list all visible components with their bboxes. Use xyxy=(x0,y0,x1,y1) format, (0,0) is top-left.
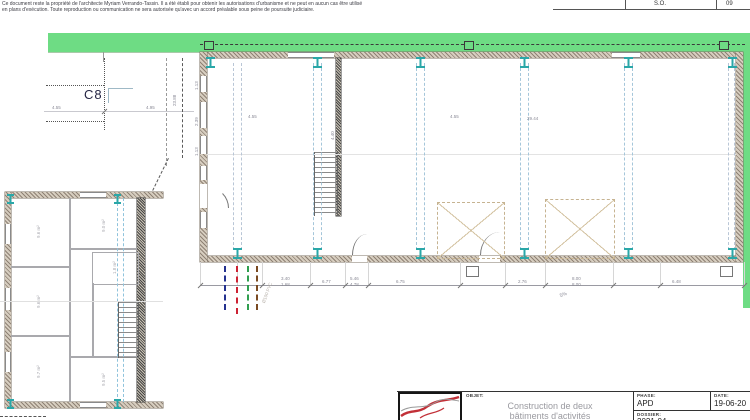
main-wall-top xyxy=(200,52,743,58)
dimension-label: 6.48 xyxy=(672,279,681,284)
utility-line-red xyxy=(236,266,238,314)
date-value: 19-06-20 xyxy=(714,400,746,408)
parcel-dotted-line xyxy=(46,121,104,122)
steel-column-icon xyxy=(520,57,529,68)
extension-line xyxy=(545,262,546,285)
property-marker xyxy=(464,41,474,50)
window-opening xyxy=(200,166,207,180)
slope-label: 5% xyxy=(559,292,568,299)
window-opening xyxy=(200,76,207,92)
dimension-label: 6.75 xyxy=(396,279,405,284)
steel-column-icon xyxy=(233,248,242,259)
steel-column-icon xyxy=(728,57,737,68)
partition-wall xyxy=(69,248,137,250)
parcel-leader-mark xyxy=(108,88,133,103)
objet-line-1: Construction de deux xyxy=(470,401,630,411)
extension-line xyxy=(613,262,614,285)
boundary-dashed-line xyxy=(166,58,167,166)
revision-table-border xyxy=(553,9,750,10)
utility-line-brown xyxy=(256,266,258,310)
partition-wall xyxy=(11,335,69,337)
partition-wall xyxy=(11,266,69,268)
extension-line xyxy=(200,262,201,285)
revision-table-divider xyxy=(625,0,626,9)
boundary-dashed-line xyxy=(152,158,169,191)
staircase-main xyxy=(314,152,338,216)
interior-gridline-horizontal xyxy=(0,301,163,302)
dimension-label: 29.44 xyxy=(527,116,538,121)
dimension-label: 6.77 xyxy=(322,279,331,284)
extension-line xyxy=(505,262,506,285)
steel-column-icon xyxy=(206,57,215,68)
grid-axis-line xyxy=(123,198,124,402)
window-opening xyxy=(80,402,106,408)
dimension-label: 2.39 xyxy=(194,117,199,126)
steel-column-icon xyxy=(313,248,322,259)
door-swing-arc xyxy=(352,234,367,255)
extension-line xyxy=(310,262,311,285)
date-label: DATE: xyxy=(714,393,729,398)
grid-axis-line xyxy=(734,63,735,250)
annex-party-wall xyxy=(137,198,145,402)
grid-axis-line xyxy=(233,63,234,250)
steel-column-icon xyxy=(114,399,121,409)
dimension-label: 3.40 xyxy=(281,276,290,281)
grid-axis-line xyxy=(424,63,425,250)
steel-column-icon xyxy=(313,57,322,68)
staircase-annex xyxy=(118,302,139,358)
window-opening xyxy=(200,136,207,154)
extension-line xyxy=(368,262,369,285)
window-opening xyxy=(5,288,11,310)
boundary-dashed-line xyxy=(0,416,46,417)
dimension-label: 4.55 xyxy=(52,105,61,110)
boundary-dashed-line xyxy=(182,58,183,158)
phase-label: PHASE: xyxy=(637,393,656,398)
dimension-label: 4.55 xyxy=(248,114,257,119)
grid-axis-line xyxy=(241,63,242,250)
room-area-label: 9.6 m² xyxy=(36,295,41,308)
extension-line xyxy=(345,262,346,285)
steel-column-icon xyxy=(728,248,737,259)
titleblock-divider xyxy=(633,392,634,420)
grid-axis-line xyxy=(313,63,314,250)
steel-column-icon xyxy=(624,248,633,259)
parcel-label: C8 xyxy=(84,87,103,102)
dimension-label: 1.68 xyxy=(281,282,290,287)
grid-axis-line xyxy=(624,63,625,250)
sectional-door-symbol xyxy=(545,199,615,259)
property-marker xyxy=(719,41,729,50)
disclaimer-line-2: en plans d'exécution. Toute reproduction… xyxy=(2,7,374,13)
drawing-sheet: Ce document reste la propriété de l'arch… xyxy=(0,0,750,420)
room-area-label: 1.8 m² xyxy=(112,261,117,274)
grid-axis-line xyxy=(632,63,633,250)
room-area-label: 9.6 m² xyxy=(36,225,41,238)
logo-graphic xyxy=(400,394,460,420)
partition-wall xyxy=(69,198,71,402)
steel-column-icon xyxy=(520,248,529,259)
window-opening xyxy=(200,102,207,128)
steel-column-icon xyxy=(7,194,14,204)
grid-axis-line xyxy=(416,63,417,250)
dimension-line xyxy=(44,111,194,112)
partition-wall xyxy=(92,283,94,356)
dimension-label: 8.00 xyxy=(572,276,581,281)
titleblock-divider xyxy=(710,392,711,410)
downspout-symbol xyxy=(720,266,733,277)
utility-line-green xyxy=(247,266,249,310)
steel-column-icon xyxy=(114,194,121,204)
dimension-label: 4.40 xyxy=(330,131,335,140)
objet-line-2: bâtiments d'activités xyxy=(470,411,630,420)
main-wall-right xyxy=(736,52,743,262)
grid-axis-line xyxy=(528,63,529,250)
grass-strip-top xyxy=(48,33,750,53)
door-opening-bottom xyxy=(352,256,367,262)
scale-value: S.O. xyxy=(640,1,680,7)
dimension-label: 23.88 xyxy=(172,95,177,106)
grid-axis-line xyxy=(728,63,729,250)
dimension-label: 4.55 xyxy=(450,114,459,119)
steel-column-icon xyxy=(416,248,425,259)
extension-line xyxy=(460,262,461,285)
phase-value: APD xyxy=(637,400,653,408)
room-area-label: 9.7 m² xyxy=(36,365,41,378)
window-opening xyxy=(5,352,11,372)
titleblock-divider xyxy=(633,410,750,411)
property-marker xyxy=(204,41,214,50)
dimension-label: 2.76 xyxy=(518,279,527,284)
grid-axis-line xyxy=(117,198,118,402)
utility-line-blue xyxy=(224,266,226,310)
objet-label: OBJET: xyxy=(466,393,484,398)
room-area-label: 9.0 m² xyxy=(101,219,106,232)
dimension-label: 4.78 xyxy=(350,282,359,287)
parcel-dotted-line xyxy=(46,85,104,86)
revision-table-divider xyxy=(716,0,717,9)
window-opening xyxy=(200,212,207,228)
room-area-label: 9.5 m² xyxy=(101,373,106,386)
grid-axis-line xyxy=(520,63,521,250)
dimension-label: 1.13 xyxy=(194,81,199,90)
architect-logo xyxy=(398,392,462,420)
door-swing-arc xyxy=(208,187,229,208)
door-opening-left xyxy=(200,184,207,208)
dimension-label: 4.95 xyxy=(146,105,155,110)
sheet-number: 09 xyxy=(726,1,733,7)
interior-gridline-horizontal xyxy=(207,154,736,155)
window-opening xyxy=(80,192,106,198)
dimension-label: 5.46 xyxy=(350,276,359,281)
extension-line xyxy=(660,262,661,285)
downspout-symbol xyxy=(466,266,479,277)
dimension-label: 8.00 xyxy=(572,282,581,287)
extension-line xyxy=(744,262,745,285)
window-opening xyxy=(288,52,334,58)
extension-line xyxy=(262,262,263,285)
parcel-dotted-line xyxy=(104,58,105,130)
steel-column-icon xyxy=(7,399,14,409)
sectional-door-symbol xyxy=(437,202,505,259)
window-opening xyxy=(5,224,11,244)
grid-axis-line xyxy=(321,63,322,250)
dimension-label: 1.13 xyxy=(194,147,199,156)
steel-column-icon xyxy=(416,57,425,68)
steel-column-icon xyxy=(624,57,633,68)
